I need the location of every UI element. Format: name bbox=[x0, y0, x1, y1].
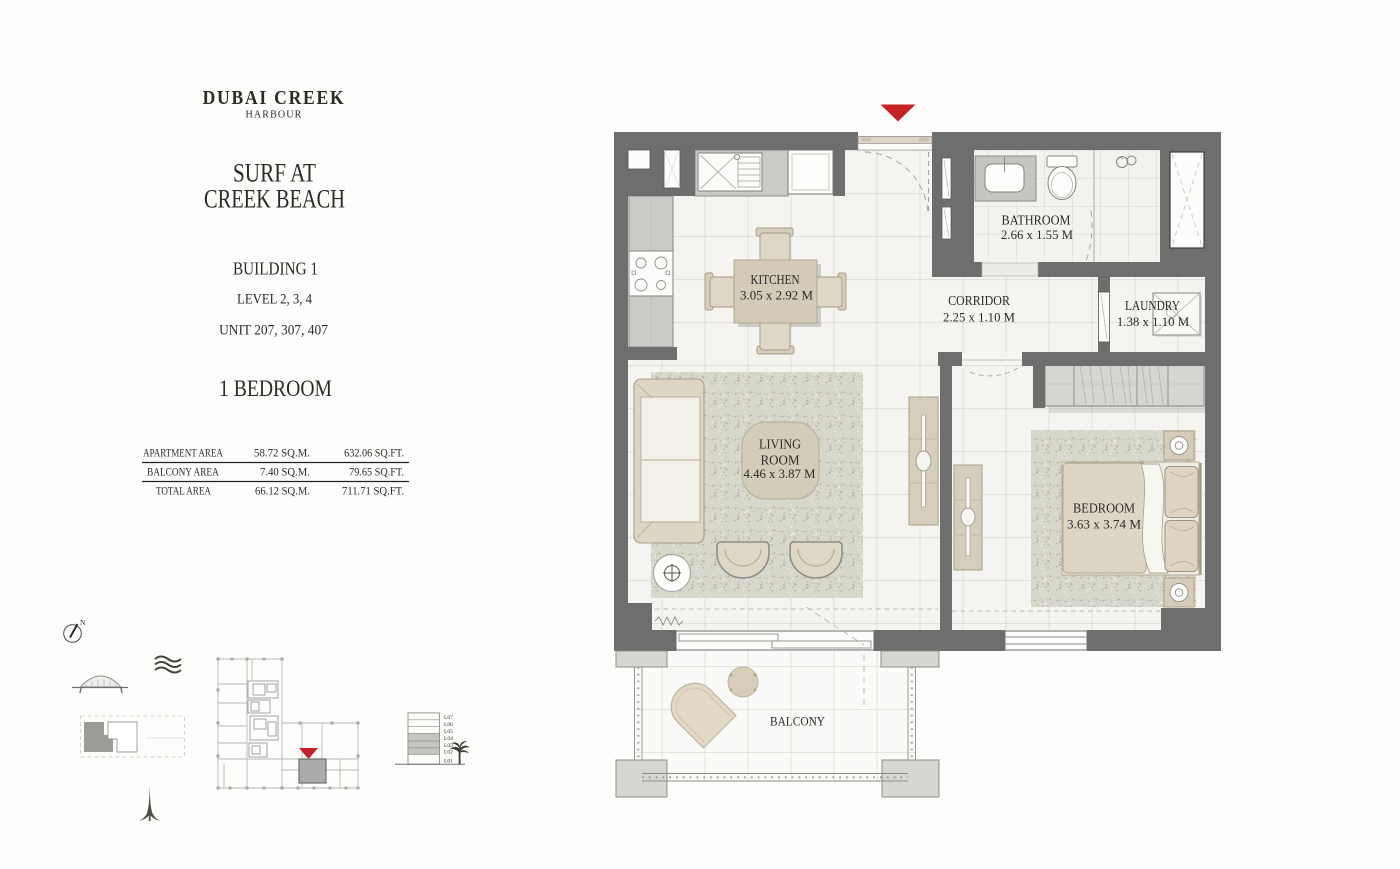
svg-text:CREEK BEACH: CREEK BEACH bbox=[204, 185, 345, 214]
svg-text:7.40 SQ.M.: 7.40 SQ.M. bbox=[260, 466, 310, 479]
svg-text:ROOM: ROOM bbox=[760, 452, 799, 468]
svg-text:58.72 SQ.M.: 58.72 SQ.M. bbox=[254, 447, 310, 460]
svg-text:KITCHEN: KITCHEN bbox=[750, 272, 799, 287]
svg-text:L01: L01 bbox=[444, 759, 453, 765]
svg-text:2.66 x 1.55 M: 2.66 x 1.55 M bbox=[1001, 228, 1073, 242]
svg-text:BATHROOM: BATHROOM bbox=[1002, 212, 1071, 228]
svg-text:LIVING: LIVING bbox=[759, 436, 801, 452]
svg-text:LAUNDRY: LAUNDRY bbox=[1125, 298, 1180, 313]
svg-text:1.38 x 1.10 M: 1.38 x 1.10 M bbox=[1117, 314, 1190, 329]
svg-text:N: N bbox=[80, 618, 86, 627]
svg-text:DUBAI CREEK: DUBAI CREEK bbox=[203, 87, 346, 109]
svg-text:CORRIDOR: CORRIDOR bbox=[948, 292, 1010, 308]
svg-text:4.46 x 3.87 M: 4.46 x 3.87 M bbox=[744, 467, 816, 481]
svg-text:66.12 SQ.M.: 66.12 SQ.M. bbox=[255, 485, 310, 498]
svg-text:L06: L06 bbox=[444, 722, 453, 728]
svg-text:3.63 x 3.74 M: 3.63 x 3.74 M bbox=[1067, 517, 1141, 532]
svg-text:LEVEL 2, 3, 4: LEVEL 2, 3, 4 bbox=[237, 291, 312, 307]
svg-text:TOTAL AREA: TOTAL AREA bbox=[156, 485, 211, 497]
svg-text:UNIT 207, 307, 407: UNIT 207, 307, 407 bbox=[219, 323, 328, 339]
svg-text:BEDROOM: BEDROOM bbox=[1073, 500, 1135, 516]
svg-text:2.25 x 1.10 M: 2.25 x 1.10 M bbox=[943, 310, 1015, 324]
svg-text:L07: L07 bbox=[444, 715, 453, 721]
svg-text:79.65 SQ.FT.: 79.65 SQ.FT. bbox=[349, 466, 404, 479]
svg-text:3.05 x 2.92 M: 3.05 x 2.92 M bbox=[740, 287, 813, 302]
svg-text:632.06 SQ.FT.: 632.06 SQ.FT. bbox=[344, 447, 404, 460]
svg-text:L04: L04 bbox=[444, 736, 453, 742]
svg-text:HARBOUR: HARBOUR bbox=[245, 109, 302, 120]
svg-text:BUILDING 1: BUILDING 1 bbox=[233, 258, 318, 278]
svg-text:BALCONY: BALCONY bbox=[770, 714, 825, 729]
svg-text:711.71 SQ.FT.: 711.71 SQ.FT. bbox=[342, 485, 404, 498]
svg-text:SURF AT: SURF AT bbox=[233, 160, 316, 189]
svg-text:1 BEDROOM: 1 BEDROOM bbox=[219, 376, 332, 402]
svg-text:L05: L05 bbox=[444, 729, 453, 735]
svg-text:L02: L02 bbox=[444, 750, 453, 756]
svg-text:APARTMENT AREA: APARTMENT AREA bbox=[143, 447, 223, 459]
svg-text:BALCONY AREA: BALCONY AREA bbox=[147, 465, 219, 478]
